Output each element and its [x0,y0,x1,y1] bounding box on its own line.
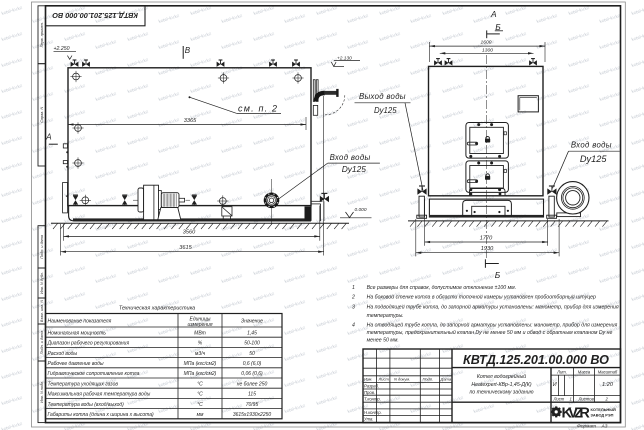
svg-text:Dy125: Dy125 [342,164,367,174]
svg-text:МПа (кгс/см2): МПа (кгс/см2) [184,361,217,367]
svg-text:ЗАВОД РЭП: ЗАВОД РЭП [591,412,614,417]
svg-text:KVZR: KVZR [562,405,591,421]
svg-text:В: В [185,46,191,55]
svg-text:3365: 3365 [184,118,197,124]
svg-text:не более 250: не более 250 [237,381,268,387]
svg-text:На боковой стенке котла в обла: На боковой стенке котла в области топочн… [367,294,596,301]
svg-text:0,6 (6,0): 0,6 (6,0) [243,361,262,367]
svg-text:КВТД.125.201.00.000 ВО: КВТД.125.201.00.000 ВО [463,353,609,367]
svg-text:Температура воды (вход/выход): Температура воды (вход/выход) [48,402,125,408]
svg-text:Масса: Масса [578,369,591,374]
svg-text:Наименование показателя: Наименование показателя [48,319,112,325]
svg-text:4: 4 [352,322,355,328]
svg-text:А: А [45,133,51,142]
svg-text:1930: 1930 [481,246,494,252]
svg-text:Разраб.: Разраб. [364,384,379,389]
svg-text:И: И [553,382,557,388]
svg-text:Dy125: Dy125 [374,106,397,115]
svg-text:1600: 1600 [481,40,492,46]
svg-text:Вход воды: Вход воды [571,141,612,150]
svg-text:1: 1 [352,285,355,291]
svg-text:по техническому заданию: по техническому заданию [469,389,533,395]
svg-text:измерения: измерения [187,322,212,328]
svg-text:Диапазон рабочего регулировани: Диапазон рабочего регулирования [47,341,130,347]
svg-text:Пров.: Пров. [364,390,375,395]
svg-text:Формат: Формат [577,423,596,429]
svg-text:°С: °С [197,381,203,387]
svg-text:°С: °С [197,402,203,408]
svg-text:Взам. инв. N: Взам. инв. N [40,300,44,322]
svg-text:50-100: 50-100 [244,341,260,347]
svg-text:Значение: Значение [241,319,263,325]
svg-text:Б: Б [495,270,501,280]
svg-text:Т.контр.: Т.контр. [364,396,381,401]
svg-text:1770: 1770 [480,235,493,241]
svg-text:Техническая характеристика: Техническая характеристика [119,306,195,312]
svg-text:Heatexpert-КВр-1,45-Д(К): Heatexpert-КВр-1,45-Д(К) [471,382,531,388]
svg-text:А3: А3 [601,423,608,429]
svg-text:Все размеры для справок, допус: Все размеры для справок, допустимое откл… [367,285,517,291]
svg-text:Температура уходящих газов: Температура уходящих газов [48,381,119,387]
svg-text:Рабочее давление воды: Рабочее давление воды [48,361,104,367]
svg-text:А: А [490,9,497,19]
svg-text:°С: °С [197,392,203,398]
svg-text:температуры.: температуры. [367,313,404,319]
svg-text:Масштаб: Масштаб [598,369,618,374]
svg-text:Лит.: Лит. [556,369,567,374]
svg-text:1300: 1300 [482,48,493,54]
svg-text:Утв.: Утв. [364,417,374,422]
svg-text:Максимальная рабочая температу: Максимальная рабочая температура воды [48,392,151,398]
svg-text:Дата: Дата [440,377,452,382]
svg-text:3: 3 [352,304,355,310]
svg-text:1: 1 [570,397,572,402]
svg-text:МВт: МВт [194,330,206,336]
svg-text:см. п. 2: см. п. 2 [238,103,278,113]
svg-text:Расход воды: Расход воды [48,351,78,357]
svg-text:2: 2 [351,295,355,301]
svg-text:Инв. N дубл.: Инв. N дубл. [40,272,44,294]
svg-text:температуры, предохранительный: температуры, предохранительный клапан Dу… [367,329,613,336]
svg-text:Гидравлическое сопротивление к: Гидравлическое сопротивление котла [48,371,140,377]
svg-text:1:20: 1:20 [602,382,614,388]
svg-text:На отводящей трубе котла, до з: На отводящей трубе котла, до запорной ар… [367,321,618,328]
svg-text:Подп. и дата: Подп. и дата [40,235,44,259]
svg-text:Котел водогрейный: Котел водогрейный [477,373,526,380]
svg-text:На подводящей трубе котла, д: На подводящей трубе котла, до запорной а… [367,303,619,310]
svg-text:N докум.: N докум. [394,377,410,382]
svg-text:3615: 3615 [179,245,192,251]
svg-text:Перв. примен.: Перв. примен. [40,22,44,47]
svg-text:3560: 3560 [183,230,196,236]
svg-text:Справ. N: Справ. N [40,107,44,123]
svg-text:Выход воды: Выход воды [359,92,406,101]
svg-text:менее 50 мм.: менее 50 мм. [367,337,399,343]
svg-text:Инв. N подл.: Инв. N подл. [40,381,44,403]
svg-text:Н.контр.: Н.контр. [364,410,382,415]
svg-text:Подп.: Подп. [423,377,434,382]
svg-text:0,06 (0,6): 0,06 (0,6) [241,371,263,377]
svg-text:МПа (кгс/см2): МПа (кгс/см2) [184,371,217,377]
svg-text:1,45: 1,45 [247,330,257,336]
svg-text:Подп. и дата: Подп. и дата [40,331,44,355]
svg-text:Dy125: Dy125 [580,154,607,164]
svg-text:Изм.: Изм. [364,377,373,382]
svg-text:Габариты котла (длина х ширина: Габариты котла (длина х ширина х высота) [48,412,155,418]
svg-text:КВТД.125.201.00.000 ВО: КВТД.125.201.00.000 ВО [52,11,138,20]
svg-text:Вход воды: Вход воды [330,153,371,162]
svg-text:Листов: Листов [578,397,595,402]
svg-text:Лист: Лист [553,397,565,402]
svg-text:0.000: 0.000 [355,207,367,213]
svg-text:3615х1930х2250: 3615х1930х2250 [233,412,272,418]
svg-text:50: 50 [249,351,255,357]
svg-text:70/95: 70/95 [246,402,259,408]
svg-text:%: % [198,341,203,347]
svg-text:115: 115 [248,392,256,398]
svg-text:м3/ч: м3/ч [195,351,206,357]
svg-text:Лист: Лист [378,377,390,382]
svg-text:мм: мм [197,412,204,418]
svg-text:Номинальная мощность: Номинальная мощность [48,330,107,336]
